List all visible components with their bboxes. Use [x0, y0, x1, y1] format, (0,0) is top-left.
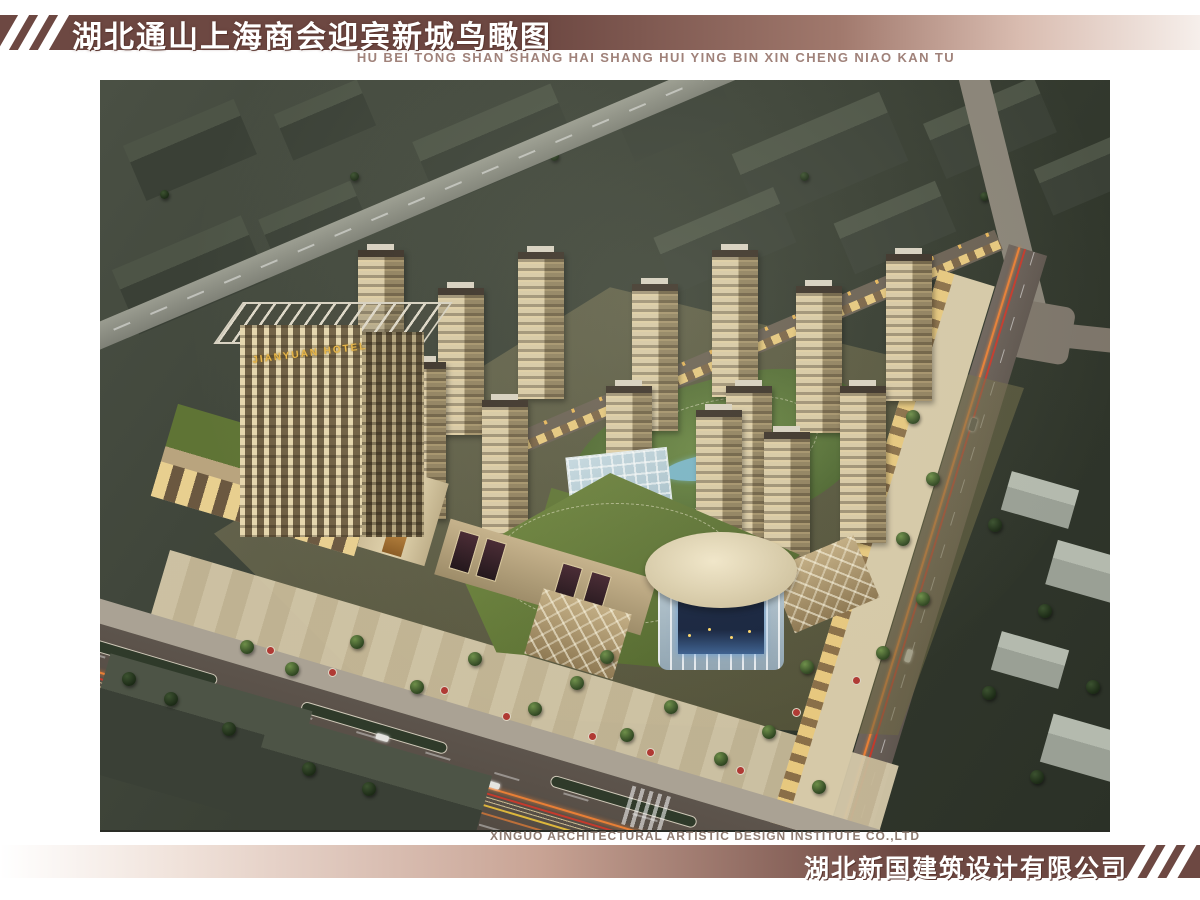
- design-institute-en: XINGUO ARCHITECTURAL ARTISTIC DESIGN INS…: [400, 829, 1010, 843]
- aerial-rendering: JIANYUAN HOTEL: [100, 80, 1110, 832]
- design-institute-cn: 湖北新国建筑设计有限公司: [804, 849, 1128, 885]
- atmosphere-haze: [100, 80, 1110, 830]
- page-title-pinyin: HU BEI TONG SHAN SHANG HAI SHANG HUI YIN…: [0, 50, 955, 65]
